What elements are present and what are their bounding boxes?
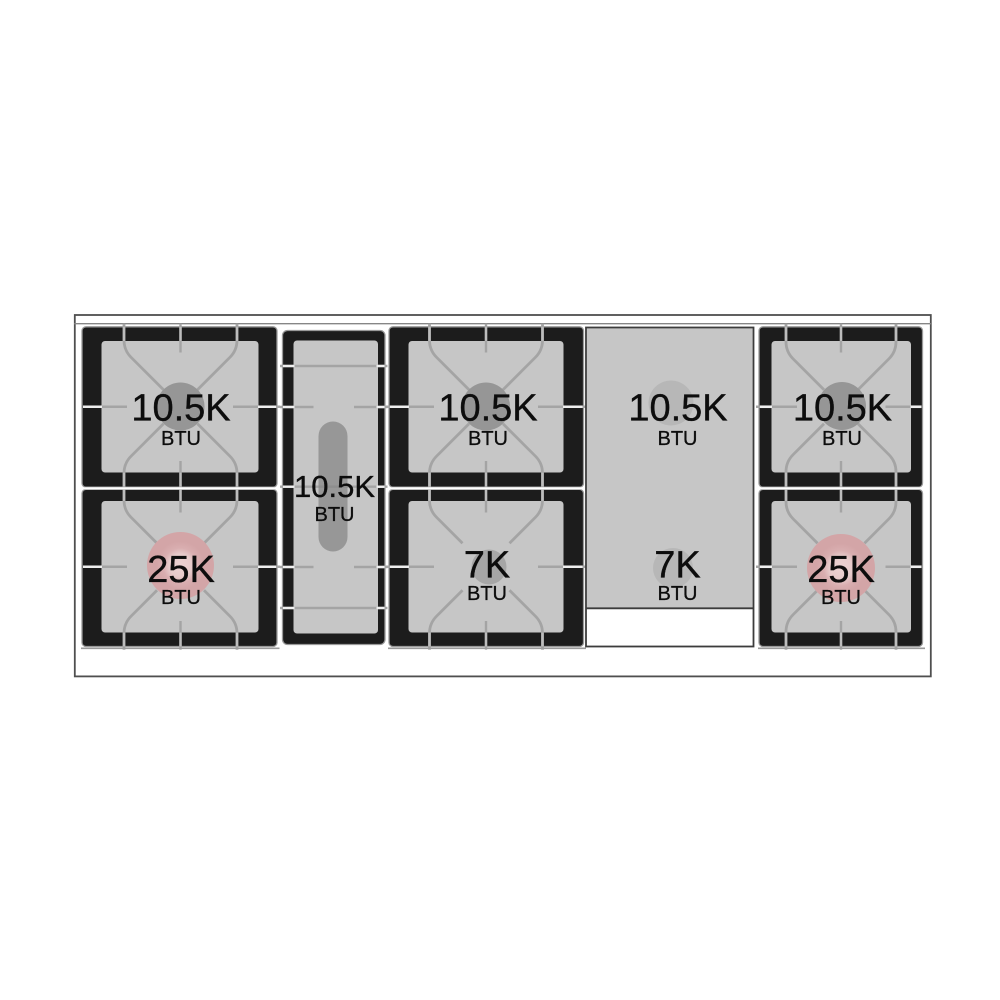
svg-text:BTU: BTU [821, 587, 861, 609]
svg-text:BTU: BTU [468, 428, 508, 450]
svg-text:10.5K: 10.5K [131, 387, 230, 429]
svg-text:25K: 25K [807, 549, 875, 591]
svg-text:BTU: BTU [467, 583, 507, 605]
svg-text:BTU: BTU [161, 587, 201, 609]
svg-text:BTU: BTU [315, 504, 355, 526]
svg-text:10.5K: 10.5K [294, 469, 375, 504]
svg-text:BTU: BTU [822, 428, 862, 450]
svg-text:7K: 7K [464, 545, 510, 587]
svg-text:10.5K: 10.5K [628, 387, 727, 429]
svg-text:7K: 7K [654, 545, 700, 587]
svg-text:10.5K: 10.5K [438, 387, 537, 429]
svg-text:25K: 25K [147, 549, 215, 591]
svg-text:10.5K: 10.5K [793, 387, 892, 429]
svg-text:BTU: BTU [658, 428, 698, 450]
svg-text:BTU: BTU [161, 428, 201, 450]
svg-text:BTU: BTU [658, 583, 698, 605]
